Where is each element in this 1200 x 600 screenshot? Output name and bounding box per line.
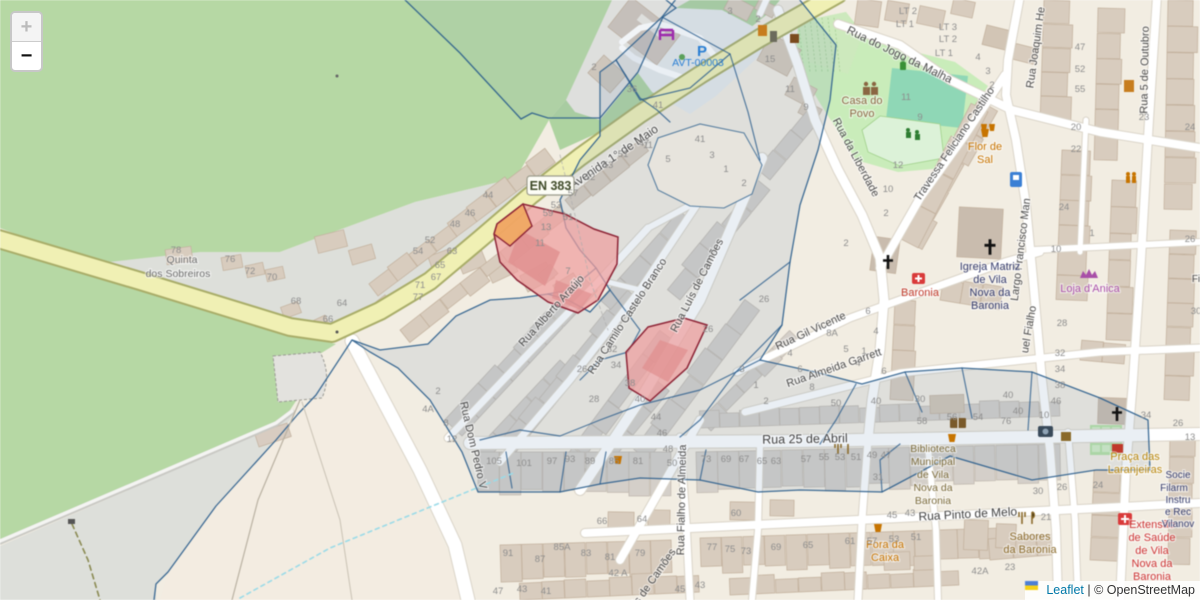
- svg-text:63: 63: [771, 456, 782, 467]
- svg-text:45: 45: [675, 584, 686, 595]
- svg-text:46: 46: [465, 208, 476, 219]
- svg-text:69: 69: [721, 454, 732, 465]
- svg-text:52: 52: [425, 235, 436, 246]
- svg-text:46: 46: [657, 428, 668, 439]
- svg-text:Casa do: Casa do: [842, 95, 883, 107]
- svg-text:76: 76: [225, 254, 236, 265]
- svg-text:5: 5: [843, 344, 848, 355]
- svg-text:12: 12: [447, 434, 458, 445]
- svg-text:47: 47: [881, 450, 892, 461]
- svg-text:Caixa: Caixa: [871, 552, 900, 564]
- svg-text:64: 64: [637, 514, 648, 525]
- svg-text:66: 66: [597, 516, 608, 527]
- svg-text:43: 43: [517, 584, 528, 595]
- svg-text:2: 2: [989, 80, 994, 91]
- svg-text:73: 73: [741, 546, 752, 557]
- svg-text:2: 2: [763, 396, 768, 407]
- svg-text:51: 51: [563, 212, 574, 223]
- svg-text:4A: 4A: [422, 404, 434, 415]
- svg-text:26: 26: [759, 294, 770, 305]
- svg-text:1: 1: [861, 346, 866, 357]
- svg-text:61: 61: [845, 536, 856, 547]
- svg-text:11: 11: [901, 92, 911, 103]
- svg-text:51: 51: [618, 149, 629, 160]
- svg-text:52: 52: [585, 172, 596, 183]
- svg-text:40: 40: [1003, 390, 1014, 401]
- svg-text:55: 55: [1075, 84, 1086, 95]
- svg-text:43: 43: [695, 580, 706, 591]
- svg-text:64: 64: [337, 298, 348, 309]
- svg-text:40: 40: [1013, 406, 1024, 417]
- svg-text:53: 53: [889, 534, 900, 545]
- svg-text:49: 49: [867, 450, 878, 461]
- svg-text:4: 4: [787, 348, 792, 359]
- svg-text:43: 43: [905, 508, 916, 519]
- svg-text:51: 51: [851, 452, 862, 463]
- svg-text:LT 2: LT 2: [939, 34, 957, 45]
- svg-text:de Vila: de Vila: [1135, 545, 1169, 557]
- svg-text:24: 24: [1059, 202, 1070, 213]
- svg-text:41: 41: [695, 134, 706, 145]
- svg-text:77: 77: [707, 542, 718, 553]
- svg-text:50: 50: [667, 458, 678, 469]
- svg-text:13: 13: [1185, 432, 1196, 443]
- svg-text:LT 1: LT 1: [935, 48, 953, 59]
- svg-text:11: 11: [535, 238, 545, 249]
- svg-text:Rua 25 de Abril: Rua 25 de Abril: [762, 431, 848, 446]
- svg-text:26: 26: [577, 364, 588, 375]
- svg-text:78: 78: [171, 245, 182, 256]
- svg-text:Municipal: Municipal: [911, 456, 955, 468]
- svg-text:65: 65: [757, 456, 768, 467]
- svg-text:26: 26: [1173, 418, 1184, 429]
- svg-text:89: 89: [585, 456, 596, 467]
- svg-text:21: 21: [1041, 512, 1052, 523]
- svg-text:de Saúde: de Saúde: [1128, 532, 1175, 544]
- svg-text:de Vila: de Vila: [973, 274, 1007, 286]
- svg-text:8A: 8A: [826, 328, 838, 339]
- svg-text:22: 22: [1071, 144, 1082, 155]
- svg-text:57: 57: [867, 536, 878, 547]
- svg-text:40: 40: [635, 394, 646, 405]
- svg-text:Sabores: Sabores: [1010, 531, 1051, 543]
- svg-text:70: 70: [267, 272, 278, 283]
- svg-text:26: 26: [703, 324, 714, 335]
- svg-text:50: 50: [831, 398, 842, 409]
- svg-text:40: 40: [871, 396, 882, 407]
- svg-text:11: 11: [785, 84, 795, 95]
- svg-text:Baronia: Baronia: [901, 287, 940, 299]
- svg-text:105: 105: [486, 456, 502, 467]
- svg-text:30: 30: [1191, 306, 1200, 317]
- svg-text:53: 53: [835, 452, 846, 463]
- svg-text:9: 9: [917, 112, 922, 123]
- svg-text:41: 41: [541, 586, 552, 597]
- svg-text:8: 8: [443, 418, 448, 429]
- svg-text:1: 1: [753, 380, 758, 391]
- svg-text:77: 77: [413, 292, 424, 303]
- svg-text:81: 81: [633, 456, 644, 467]
- svg-text:7: 7: [565, 266, 570, 277]
- svg-text:3: 3: [709, 150, 714, 161]
- svg-text:67: 67: [431, 272, 442, 283]
- svg-text:52: 52: [1075, 64, 1086, 75]
- svg-text:38: 38: [1055, 380, 1066, 391]
- svg-text:101: 101: [516, 458, 532, 469]
- svg-text:5: 5: [665, 154, 670, 165]
- svg-text:38: 38: [625, 378, 636, 389]
- svg-text:63: 63: [447, 246, 458, 257]
- svg-text:48: 48: [450, 219, 461, 230]
- svg-text:3: 3: [985, 66, 990, 77]
- svg-text:30: 30: [1033, 486, 1044, 497]
- svg-text:2: 2: [883, 208, 888, 219]
- svg-text:85A: 85A: [554, 542, 572, 553]
- svg-text:71: 71: [415, 280, 426, 291]
- svg-text:24: 24: [1093, 480, 1104, 491]
- svg-text:34: 34: [1055, 364, 1066, 375]
- svg-text:dos Sobreiros: dos Sobreiros: [146, 268, 211, 280]
- svg-text:93: 93: [565, 454, 576, 465]
- svg-text:65: 65: [435, 260, 446, 271]
- svg-text:Loja d'Anica: Loja d'Anica: [1060, 283, 1120, 295]
- svg-text:46: 46: [1051, 396, 1062, 407]
- svg-text:66: 66: [323, 314, 334, 325]
- svg-text:81: 81: [605, 552, 616, 563]
- svg-text:32: 32: [1055, 348, 1066, 359]
- svg-text:Igreja Matriz: Igreja Matriz: [960, 261, 1021, 273]
- svg-text:Baronia: Baronia: [915, 495, 951, 507]
- svg-text:23: 23: [1139, 112, 1150, 123]
- svg-text:68: 68: [291, 296, 302, 307]
- svg-text:42A: 42A: [972, 566, 990, 577]
- svg-text:8: 8: [809, 382, 814, 393]
- svg-text:57: 57: [801, 454, 812, 465]
- svg-text:9: 9: [803, 102, 808, 113]
- svg-text:Praça das: Praça das: [1110, 451, 1160, 463]
- svg-text:20: 20: [1071, 122, 1082, 133]
- svg-text:Povo: Povo: [849, 108, 874, 120]
- svg-text:LT 3: LT 3: [939, 22, 957, 33]
- svg-text:28: 28: [589, 394, 600, 405]
- svg-text:2: 2: [435, 386, 440, 397]
- svg-text:de Vila: de Vila: [917, 469, 949, 481]
- svg-text:67: 67: [739, 454, 750, 465]
- svg-text:24: 24: [1185, 122, 1196, 133]
- svg-text:2: 2: [591, 62, 596, 73]
- svg-text:45: 45: [887, 510, 898, 521]
- svg-text:Flor de: Flor de: [968, 141, 1002, 153]
- svg-text:6: 6: [865, 306, 870, 317]
- svg-text:10: 10: [883, 184, 894, 195]
- svg-text:e Rec: e Rec: [1165, 507, 1191, 518]
- svg-text:69: 69: [771, 542, 782, 553]
- svg-text:55: 55: [819, 452, 830, 463]
- svg-text:47: 47: [493, 586, 504, 597]
- svg-text:34: 34: [611, 360, 622, 371]
- svg-text:47: 47: [1075, 42, 1086, 53]
- svg-text:48: 48: [663, 444, 674, 455]
- svg-text:91: 91: [503, 548, 514, 559]
- svg-text:83: 83: [581, 548, 592, 559]
- svg-text:85: 85: [609, 456, 620, 467]
- svg-text:34: 34: [1141, 410, 1152, 421]
- svg-text:10: 10: [1051, 244, 1062, 255]
- svg-text:44: 44: [483, 190, 494, 201]
- svg-text:31: 31: [873, 472, 884, 483]
- svg-text:65: 65: [803, 540, 814, 551]
- svg-text:3: 3: [739, 364, 744, 375]
- svg-text:4: 4: [873, 326, 878, 337]
- svg-text:57: 57: [568, 188, 579, 199]
- svg-text:Filarm: Filarm: [1160, 483, 1188, 494]
- svg-text:Fi: Fi: [1192, 274, 1200, 285]
- svg-text:41: 41: [653, 100, 664, 111]
- svg-text:2: 2: [843, 238, 848, 249]
- svg-text:56: 56: [947, 412, 958, 423]
- svg-text:36: 36: [627, 84, 638, 95]
- svg-text:60: 60: [731, 508, 742, 519]
- svg-text:58: 58: [917, 416, 928, 427]
- svg-text:Nova da: Nova da: [913, 482, 952, 494]
- svg-text:76: 76: [1001, 416, 1012, 427]
- svg-text:3: 3: [727, 6, 732, 17]
- svg-text:97: 97: [547, 456, 558, 467]
- svg-text:79: 79: [635, 548, 646, 559]
- svg-text:59: 59: [543, 208, 554, 219]
- svg-text:Sal: Sal: [977, 154, 993, 166]
- svg-text:Instru: Instru: [1165, 495, 1190, 506]
- svg-text:LT 2: LT 2: [899, 6, 917, 17]
- svg-text:12: 12: [893, 160, 904, 171]
- svg-text:Baronia: Baronia: [971, 300, 1010, 312]
- svg-text:Biblioteca: Biblioteca: [910, 443, 956, 455]
- svg-text:EN 383: EN 383: [530, 179, 572, 193]
- svg-text:Nova da: Nova da: [1132, 558, 1174, 570]
- svg-text:4: 4: [855, 358, 860, 369]
- svg-text:6: 6: [881, 366, 886, 377]
- svg-text:42 A: 42 A: [608, 568, 628, 579]
- svg-text:75: 75: [725, 544, 736, 555]
- svg-text:Laranjeiras: Laranjeiras: [1108, 464, 1163, 476]
- svg-text:26: 26: [1185, 234, 1196, 245]
- svg-text:1: 1: [1089, 228, 1094, 239]
- svg-text:Socie: Socie: [1165, 470, 1190, 481]
- svg-text:10: 10: [1039, 410, 1050, 421]
- svg-text:6: 6: [797, 364, 802, 375]
- svg-text:da Baronia: da Baronia: [1003, 544, 1057, 556]
- svg-text:LT 1: LT 1: [896, 19, 914, 30]
- svg-text:11: 11: [643, 140, 653, 151]
- svg-text:87: 87: [535, 554, 546, 565]
- svg-text:23: 23: [1005, 562, 1016, 573]
- svg-text:44: 44: [651, 412, 662, 423]
- svg-text:73: 73: [701, 454, 712, 465]
- svg-text:51: 51: [911, 532, 922, 543]
- svg-text:30: 30: [915, 394, 926, 405]
- svg-text:15: 15: [765, 54, 776, 65]
- svg-text:4: 4: [975, 52, 980, 63]
- svg-text:54: 54: [973, 412, 984, 423]
- svg-text:Vilanov: Vilanov: [1162, 519, 1195, 530]
- svg-text:Nova da: Nova da: [970, 287, 1012, 299]
- svg-text:28: 28: [1057, 318, 1068, 329]
- svg-text:1: 1: [723, 164, 728, 175]
- svg-text:13: 13: [541, 222, 552, 233]
- svg-text:2: 2: [755, 14, 760, 25]
- svg-text:26: 26: [1057, 482, 1068, 493]
- svg-text:72: 72: [245, 266, 256, 277]
- svg-text:53: 53: [603, 160, 614, 171]
- svg-text:Rua 5 de Outubro: Rua 5 de Outubro: [1138, 26, 1152, 114]
- svg-text:32: 32: [607, 344, 618, 355]
- svg-text:2: 2: [741, 178, 746, 189]
- svg-text:54: 54: [413, 246, 424, 257]
